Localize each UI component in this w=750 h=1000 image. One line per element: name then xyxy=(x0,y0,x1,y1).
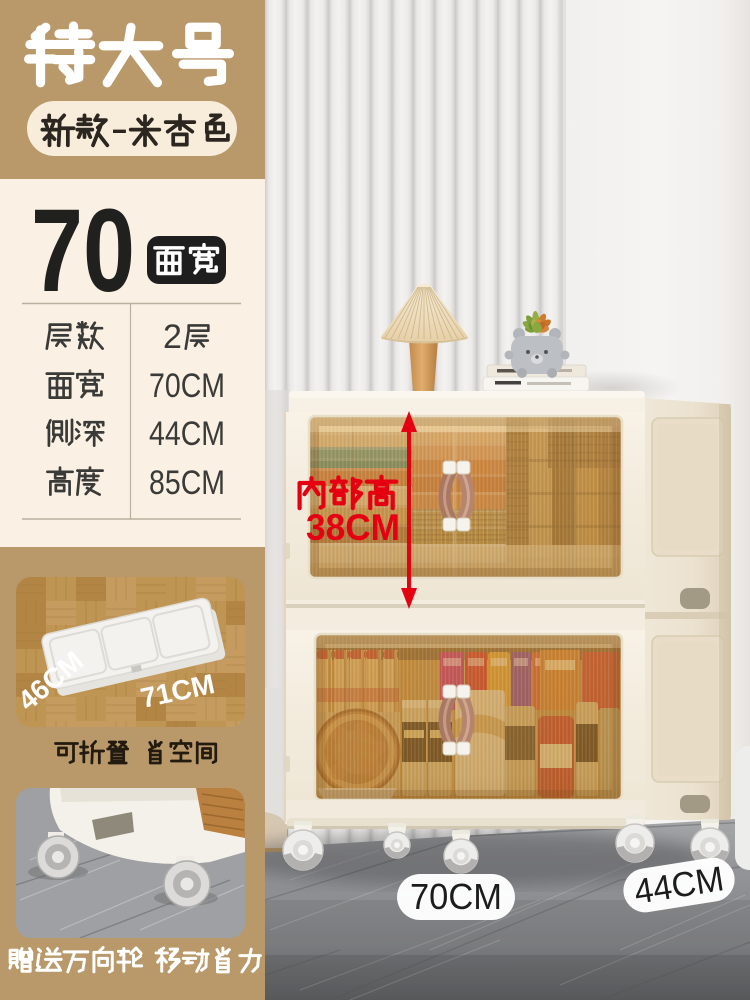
svg-text:85CM: 85CM xyxy=(149,464,225,502)
svg-text:70CM: 70CM xyxy=(149,367,225,405)
svg-text:70: 70 xyxy=(31,185,135,317)
svg-text:44CM: 44CM xyxy=(149,415,225,453)
svg-text:38CM: 38CM xyxy=(306,507,400,548)
svg-text:2: 2 xyxy=(163,318,182,356)
svg-text:70CM: 70CM xyxy=(410,876,502,917)
